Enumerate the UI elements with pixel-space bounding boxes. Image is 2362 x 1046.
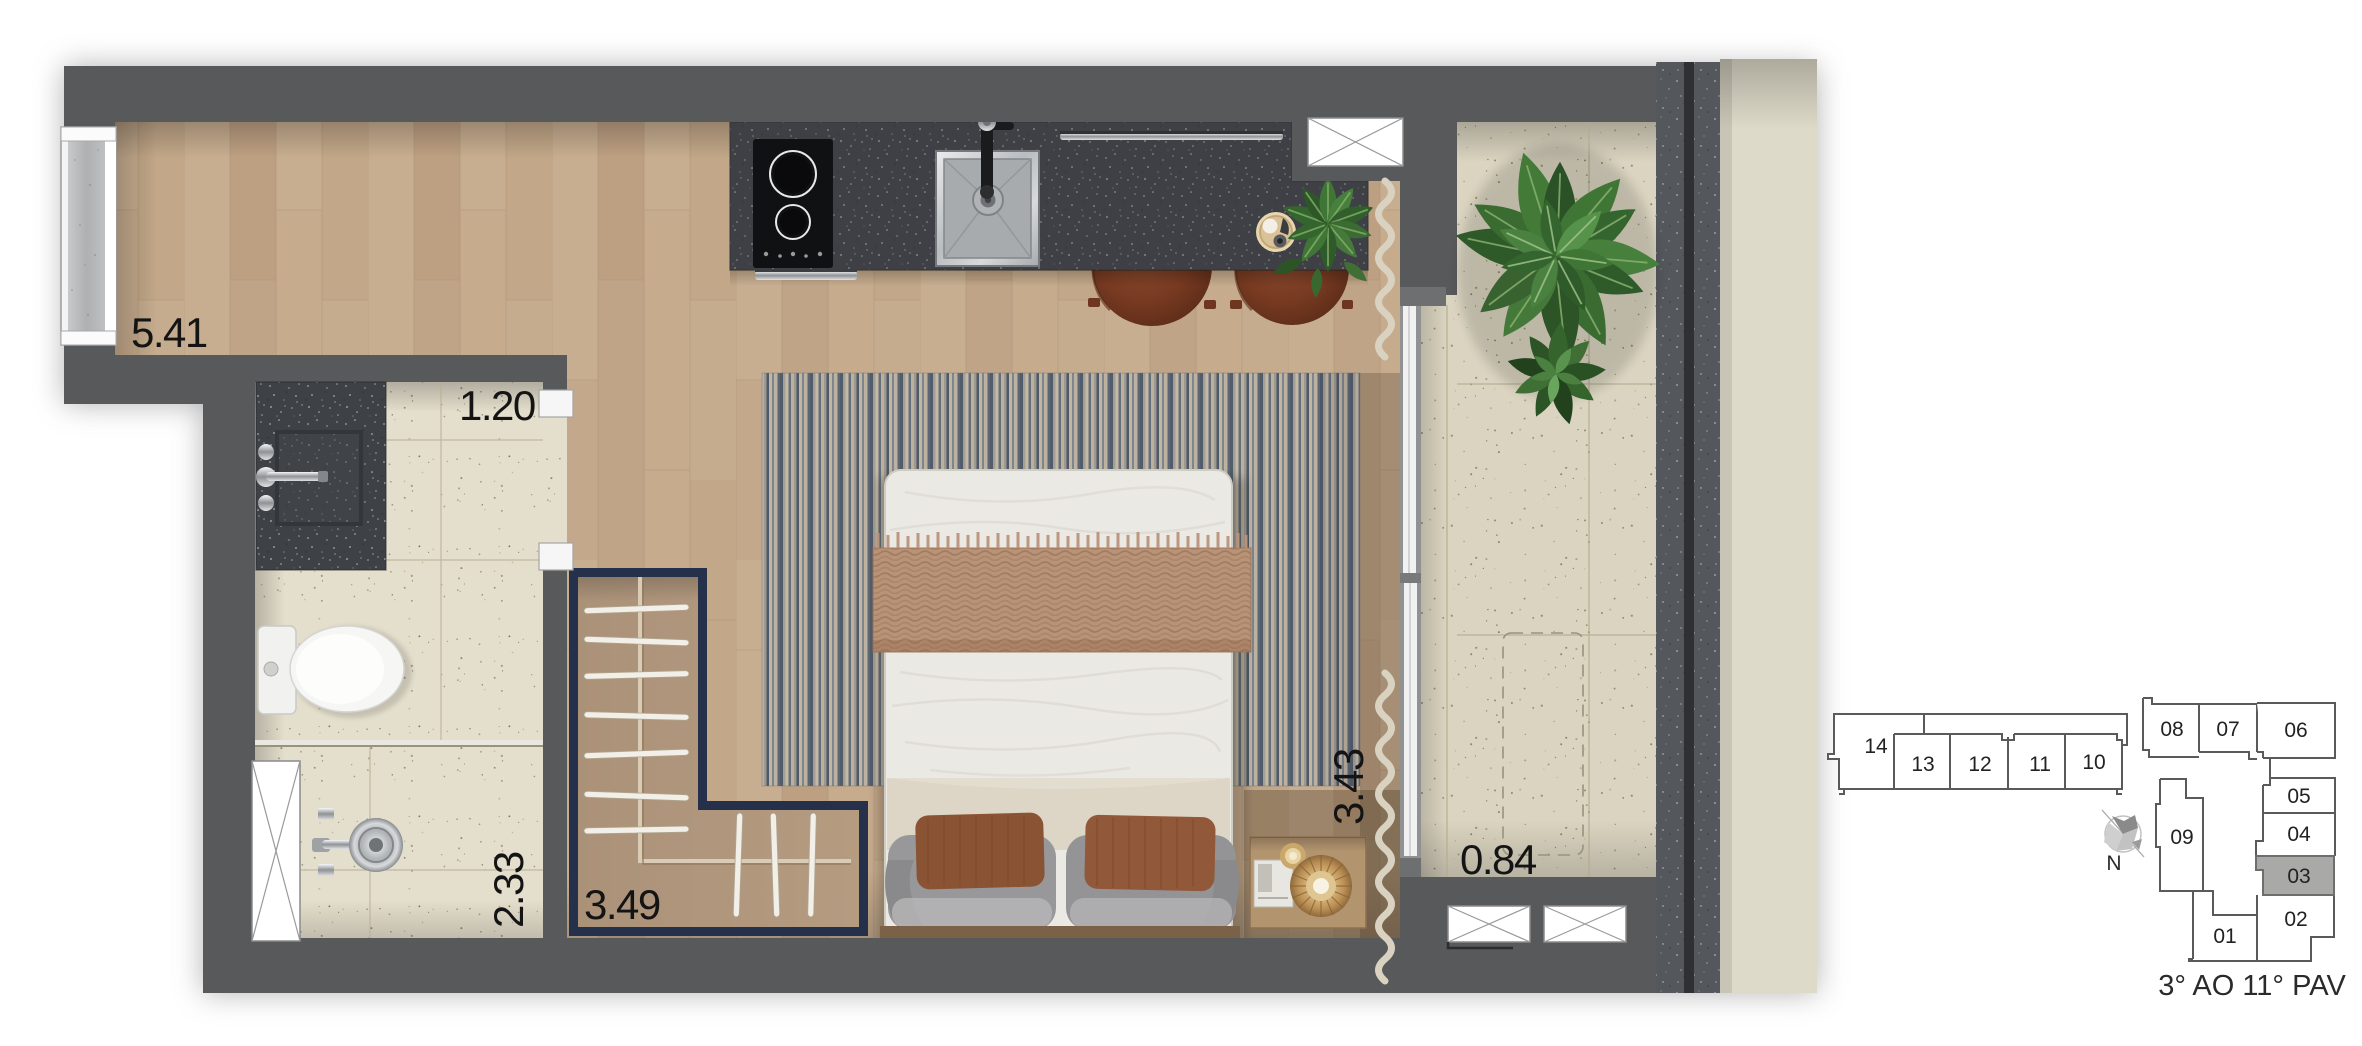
svg-text:3.43: 3.43: [1325, 749, 1372, 825]
svg-text:06: 06: [2284, 719, 2307, 742]
svg-text:05: 05: [2287, 785, 2310, 808]
svg-text:13: 13: [1911, 753, 1934, 776]
svg-text:0.84: 0.84: [1460, 836, 1537, 883]
svg-text:N: N: [2106, 852, 2121, 875]
svg-text:09: 09: [2170, 826, 2193, 849]
svg-text:12: 12: [1968, 753, 1991, 776]
svg-text:01: 01: [2213, 925, 2236, 948]
svg-text:11: 11: [2029, 753, 2051, 776]
svg-text:03: 03: [2287, 865, 2310, 888]
svg-text:1.20: 1.20: [459, 382, 535, 429]
svg-text:04: 04: [2287, 823, 2311, 846]
svg-text:08: 08: [2160, 718, 2183, 741]
svg-text:10: 10: [2082, 751, 2105, 774]
svg-text:14: 14: [1864, 735, 1888, 758]
svg-text:3° AO 11° PAV: 3° AO 11° PAV: [2158, 970, 2346, 1002]
svg-text:2.33: 2.33: [485, 852, 532, 928]
svg-text:02: 02: [2284, 908, 2307, 931]
svg-text:3.49: 3.49: [584, 881, 660, 928]
svg-text:07: 07: [2216, 718, 2239, 741]
svg-text:5.41: 5.41: [131, 309, 207, 356]
